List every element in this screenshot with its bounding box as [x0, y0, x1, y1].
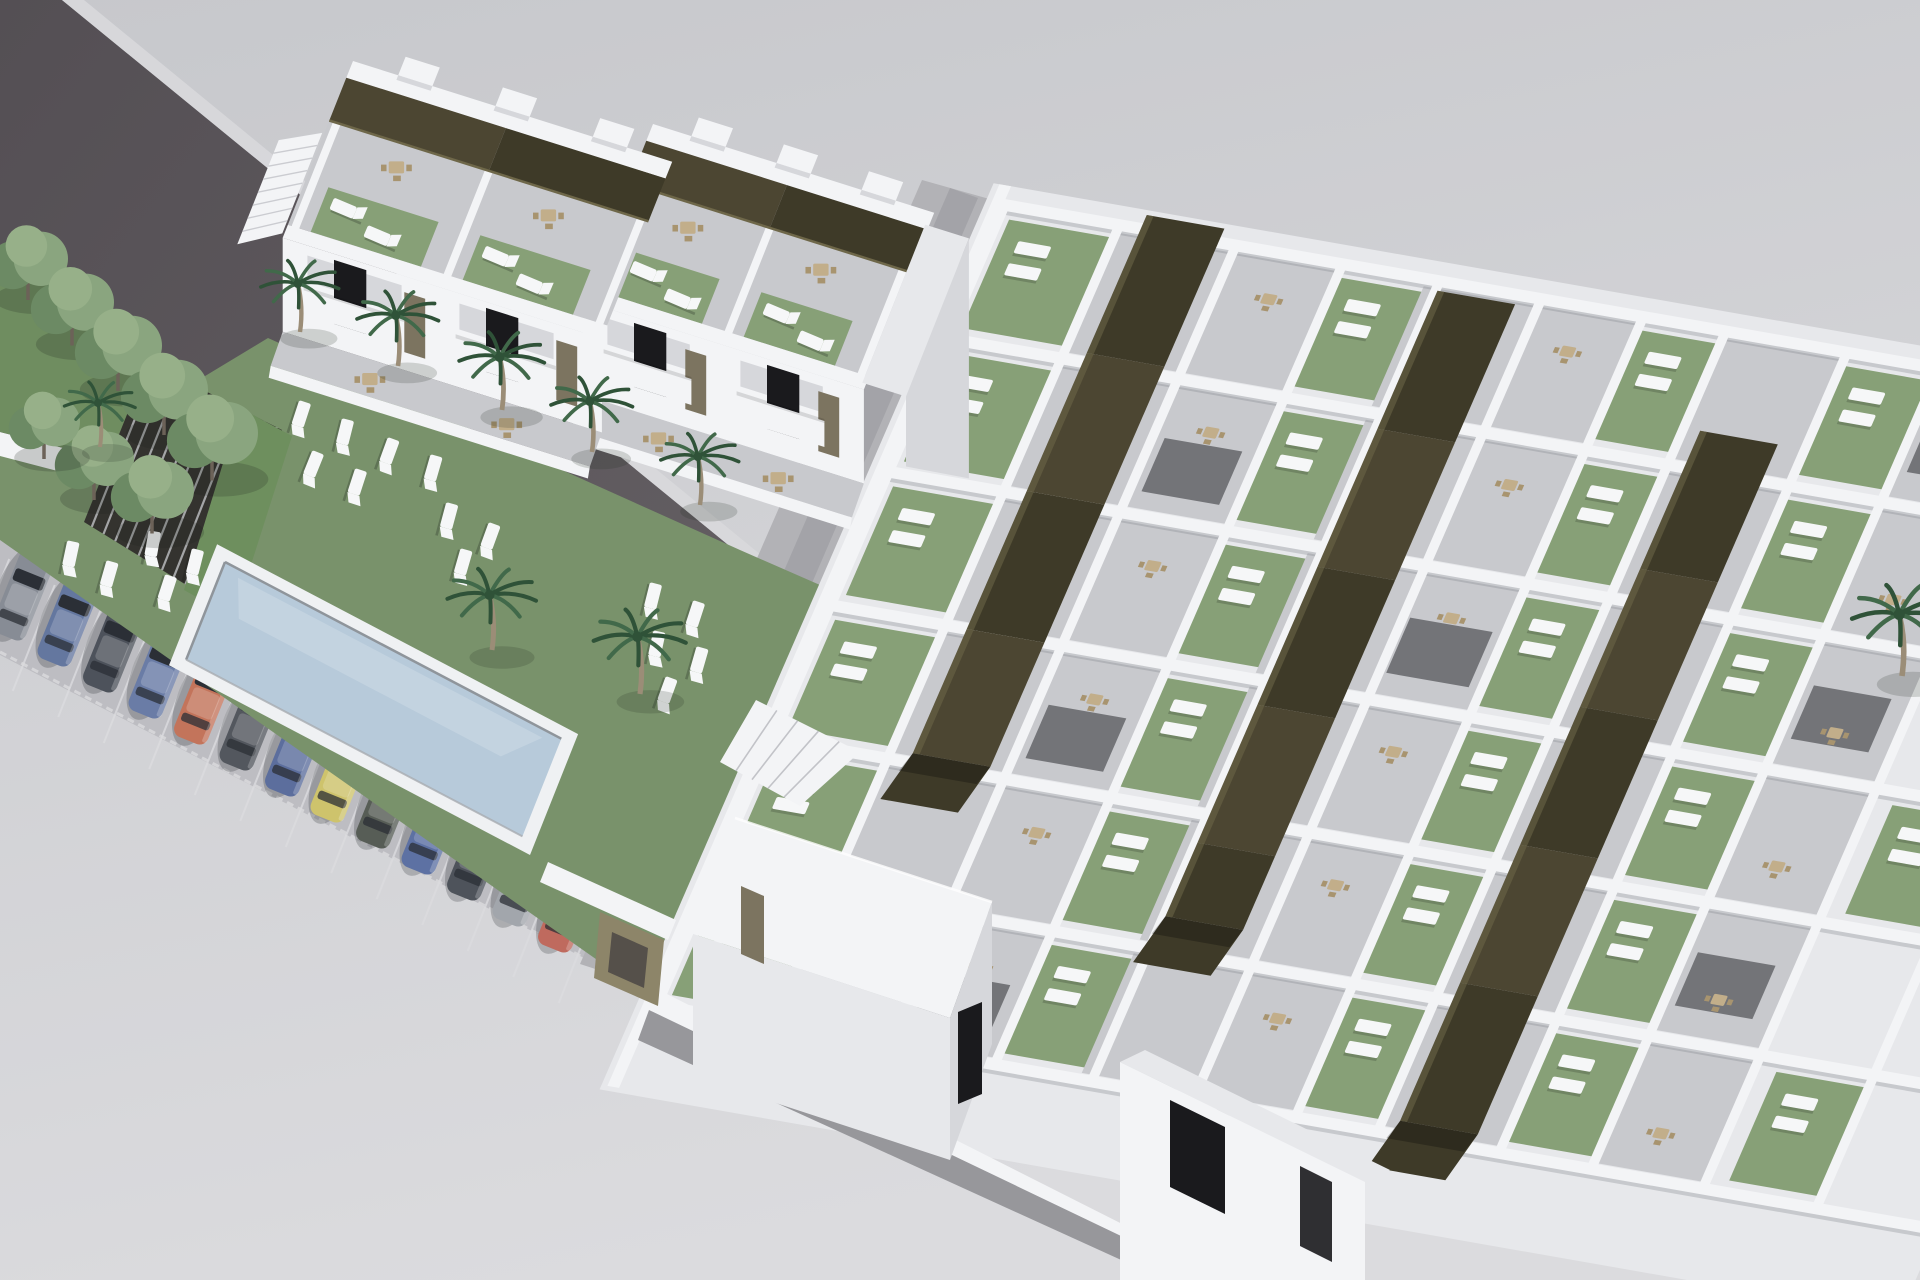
aerial-render	[0, 0, 1920, 1280]
olive-door-panel	[741, 886, 764, 964]
dark-window	[1300, 1166, 1332, 1262]
render-viewport	[0, 0, 1920, 1280]
